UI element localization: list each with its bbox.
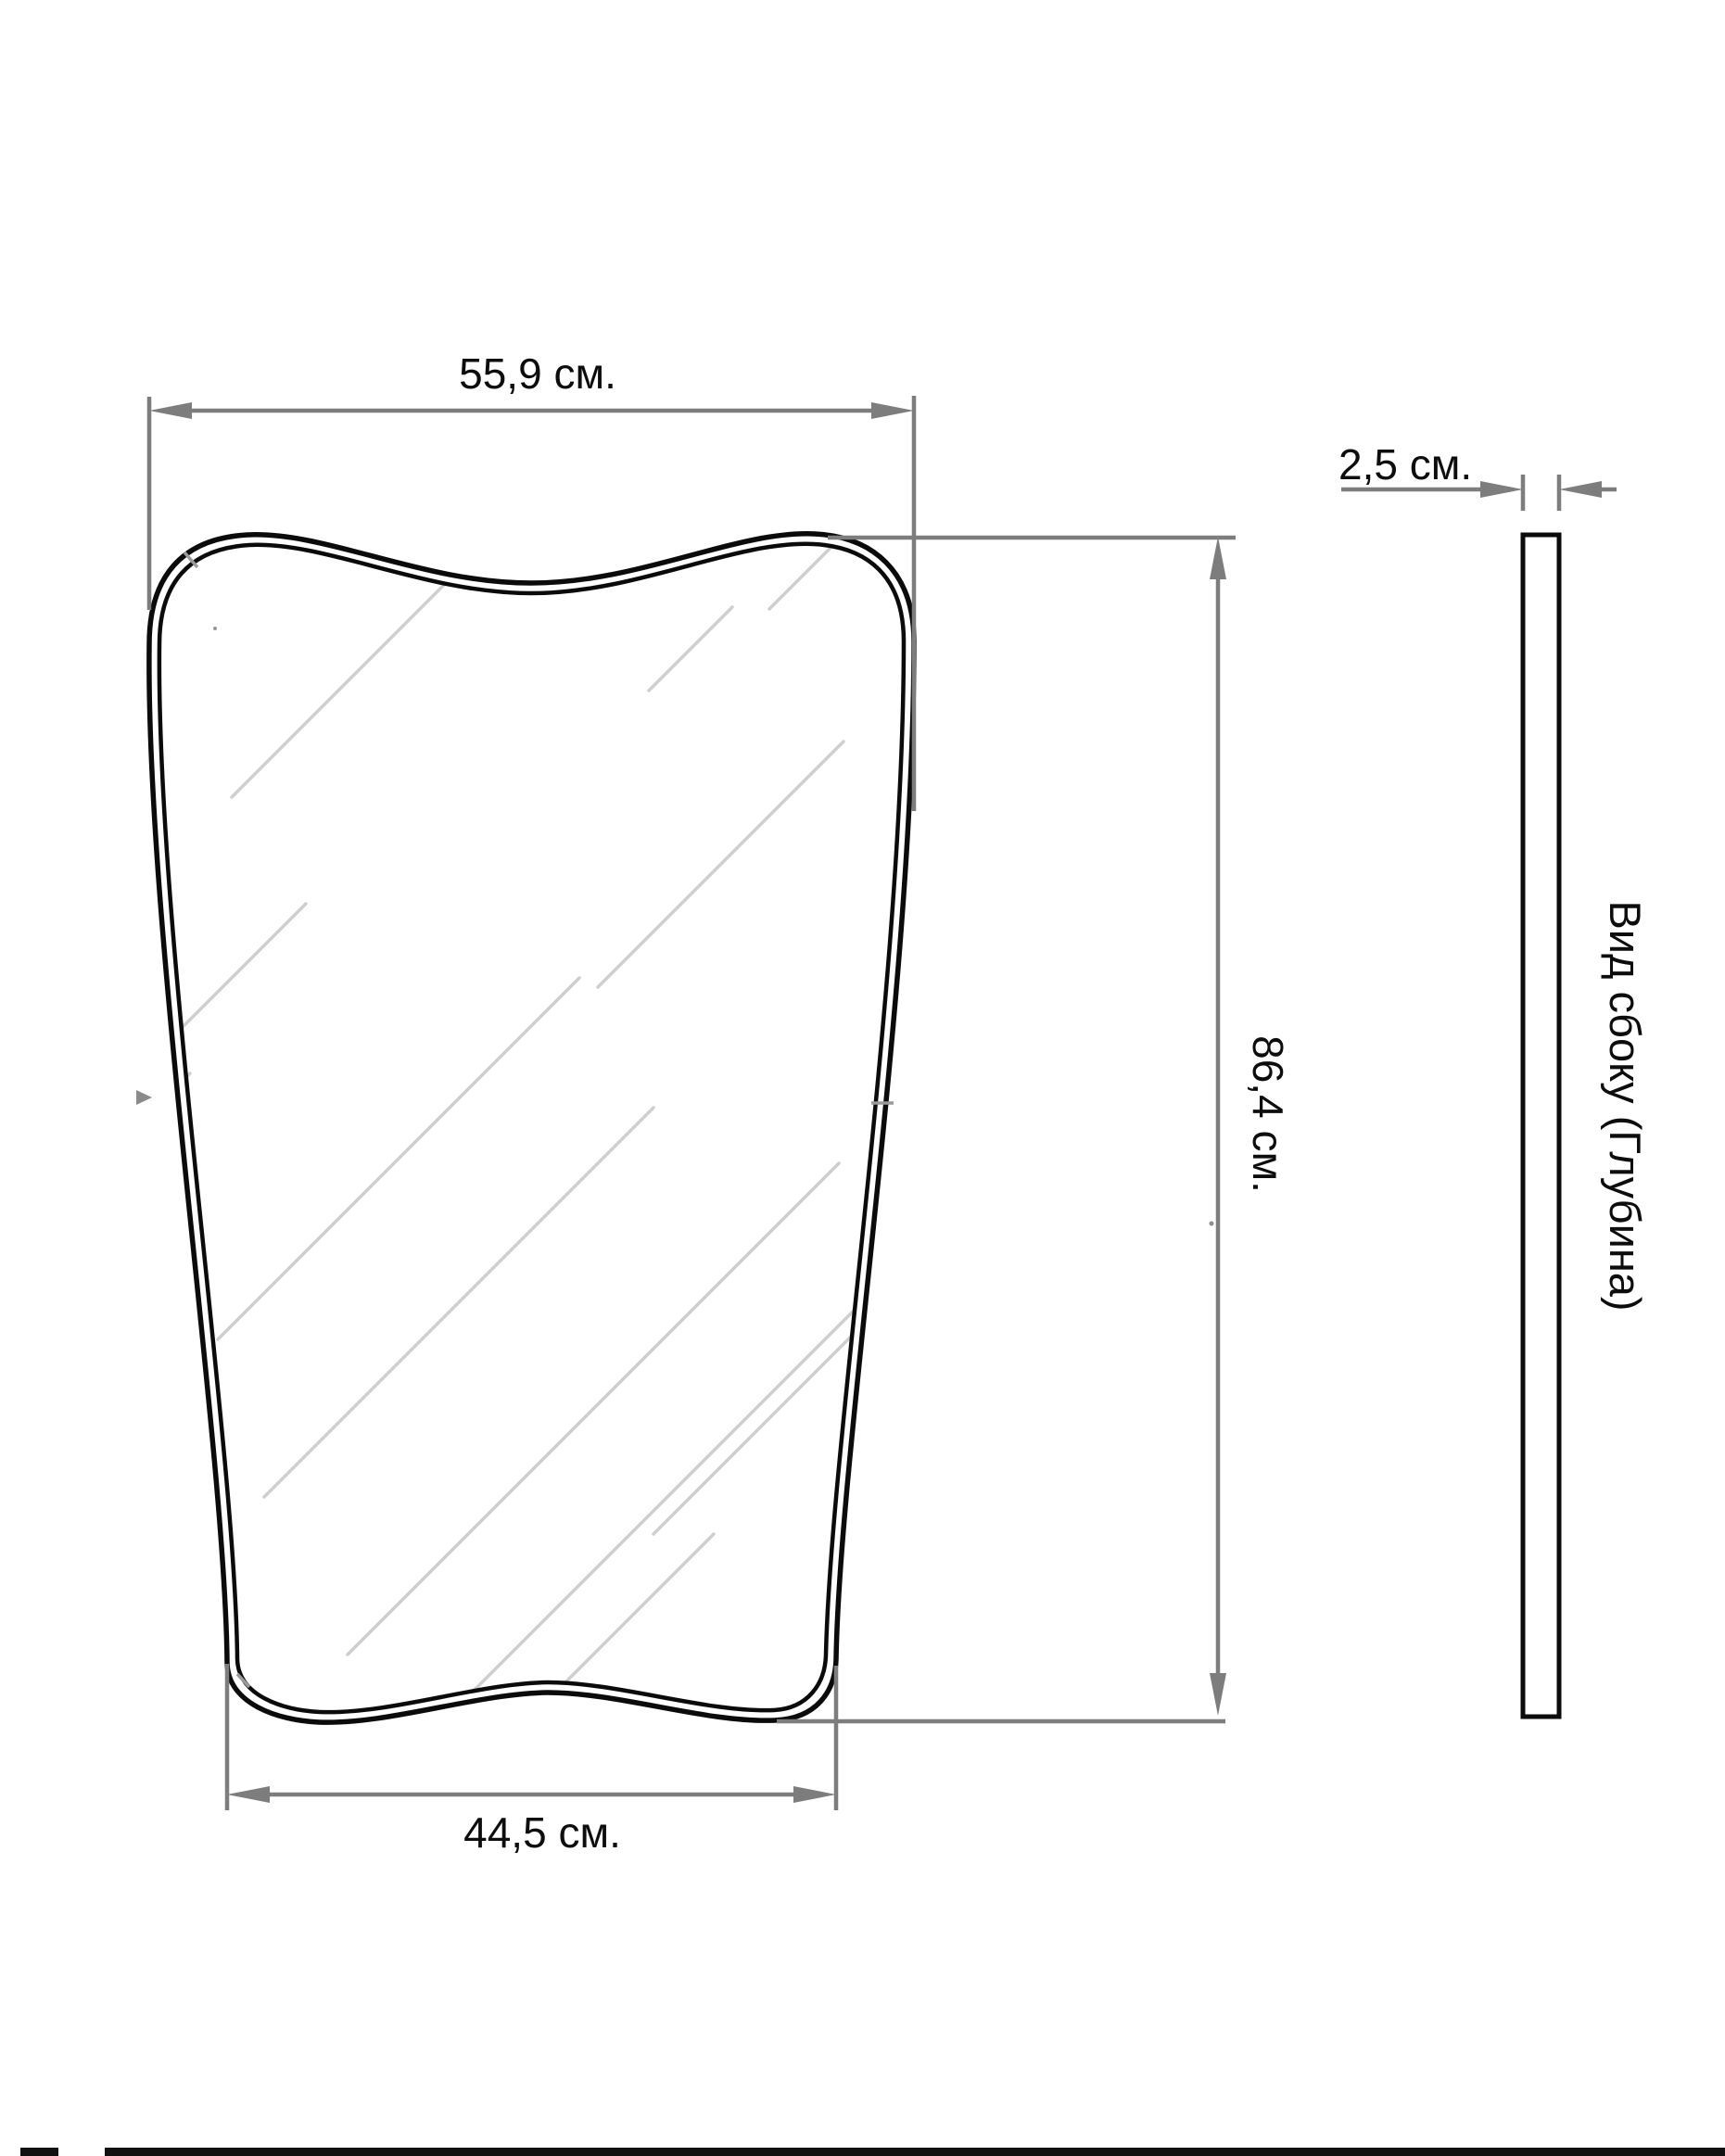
arrowhead-right: [793, 1786, 836, 1803]
arrowhead-left: [227, 1786, 270, 1803]
mirror-inner-contour: [159, 544, 904, 1712]
arrowhead-right: [1480, 481, 1523, 498]
mirror-front-outline: [149, 534, 914, 1722]
arrowhead-down: [1210, 1673, 1226, 1716]
mirror-technical-drawing: 55,9 см. 86,4 см. 44,5 см. 2,5 см. Вид с…: [0, 0, 1725, 2156]
height-label: 86,4 см.: [1244, 1035, 1292, 1193]
bottom-width-label: 44,5 см.: [463, 1808, 621, 1857]
frame-node-ticks: [136, 552, 1214, 1687]
dimension-height: [777, 537, 1236, 1721]
arrowhead-up: [1210, 537, 1226, 579]
side-view-caption: Вид сбоку (Глубина): [1601, 900, 1650, 1311]
arrowhead-left: [149, 402, 192, 419]
mirror-reflection-hatching: [137, 524, 936, 1715]
top-width-label: 55,9 см.: [459, 349, 616, 398]
dimension-top-width: [149, 396, 914, 811]
arrowhead-left: [1559, 481, 1602, 498]
arrowhead-right: [871, 402, 914, 419]
mirror-outer-contour: [149, 534, 914, 1722]
side-view-profile: [1523, 535, 1559, 1717]
dimension-bottom-width: [227, 1664, 836, 1810]
drawing-svg: 55,9 см. 86,4 см. 44,5 см. 2,5 см. Вид с…: [0, 0, 1725, 2156]
depth-label: 2,5 см.: [1338, 440, 1472, 488]
bottom-edge-cropped-rule: [20, 2148, 1725, 2156]
